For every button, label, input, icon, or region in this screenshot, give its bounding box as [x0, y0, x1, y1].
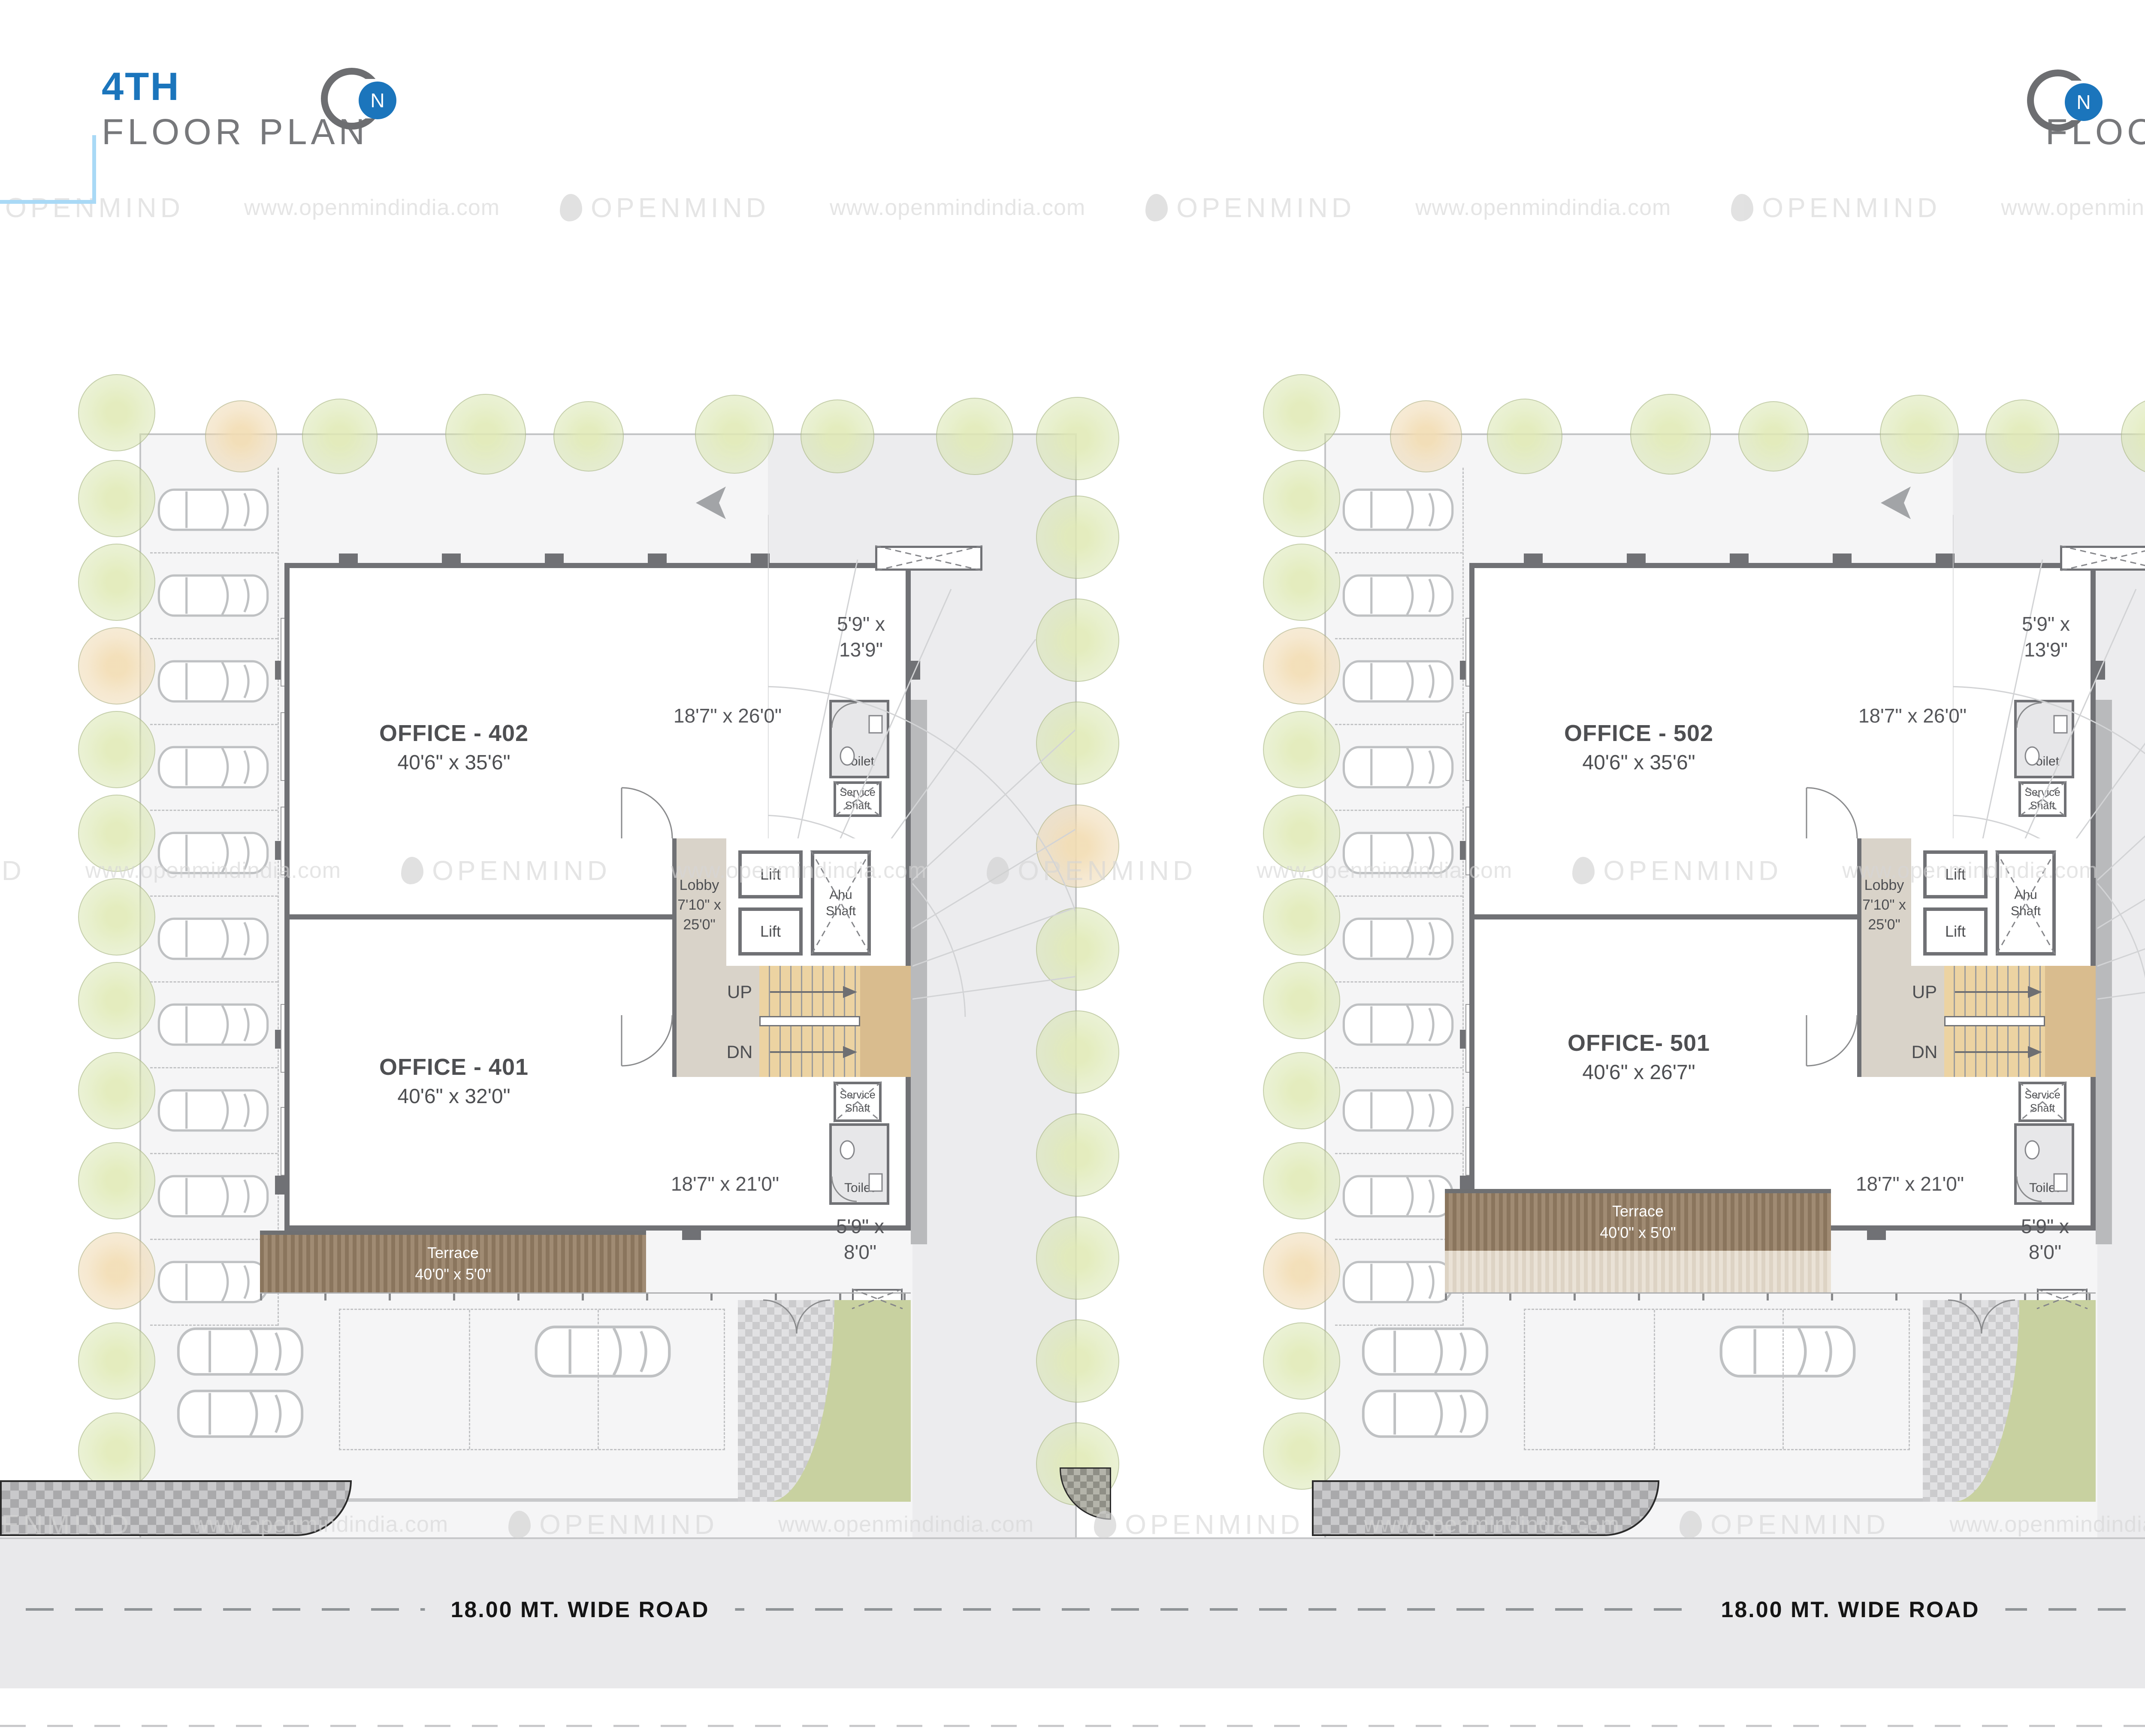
- floor-plan-5th: Lift Lift AhuShaft ServiceShaft ServiceS…: [1284, 386, 2145, 1537]
- car-icon: [1340, 656, 1456, 707]
- office-partition-wall: [1474, 914, 1857, 919]
- tree-icon: [78, 544, 155, 621]
- terrace: Terrace40'0" x 5'0": [260, 1231, 646, 1292]
- parking-stall: [1335, 1154, 1462, 1240]
- exterior-ledge: [911, 700, 927, 1244]
- tree-icon: [1263, 962, 1340, 1039]
- tree-icon: [78, 1412, 155, 1490]
- watermark-brand-text: OPENMIND: [1176, 192, 1355, 224]
- parking-stall: [1335, 1068, 1462, 1154]
- office-bottom-label: OFFICE - 40140'6" x 32'0": [304, 1054, 604, 1108]
- lift-label: Lift: [742, 854, 799, 895]
- watermark-url: www.openmindindia.com: [1415, 195, 1671, 221]
- car-icon: [1340, 484, 1456, 535]
- road-edge-dashes: [0, 1725, 2145, 1727]
- tree-icon: [302, 399, 378, 474]
- parking-stall: [150, 725, 278, 811]
- tree-icon: [1263, 627, 1340, 705]
- north-indicator-right: N: [2027, 70, 2109, 134]
- railing: [1445, 1292, 2096, 1300]
- parking-stall: [1335, 553, 1462, 639]
- parking-stall: [150, 553, 278, 639]
- road-label-right: 18.00 MT. WIDE ROAD: [1695, 1597, 2005, 1623]
- toilet-label: Toilet: [2017, 754, 2072, 769]
- car-icon: [163, 1324, 317, 1379]
- ahu-label: AhuShaft: [814, 854, 867, 952]
- parking-stall: [150, 811, 278, 897]
- parking-stall: [1335, 1240, 1462, 1326]
- exterior-ledge: [2096, 700, 2112, 1244]
- stairs-dn-label: DN: [1903, 1042, 1946, 1062]
- service-label: ServiceShaft: [836, 784, 879, 814]
- car-icon: [155, 913, 271, 965]
- lift-1: Lift: [1923, 850, 1988, 898]
- north-indicator-left: N: [321, 68, 402, 132]
- car-icon: [1340, 1256, 1456, 1308]
- parking-stall: [1335, 811, 1462, 897]
- ahu-label: AhuShaft: [1999, 854, 2052, 952]
- terrace: Terrace40'0" x 5'0": [1445, 1189, 1831, 1251]
- car-icon: [1348, 1324, 1502, 1379]
- office-bottom-label: OFFICE- 50140'6" x 26'7": [1489, 1030, 1789, 1084]
- service-shaft-bottom: ServiceShaft: [834, 1082, 882, 1122]
- lift-2: Lift: [738, 907, 803, 956]
- tree-icon: [1390, 400, 1462, 472]
- tree-icon: [205, 400, 277, 472]
- watermark-url: www.openmindindia.com: [2001, 195, 2145, 221]
- watermark-url: www.openmindindia.com: [830, 195, 1085, 221]
- tree-icon: [1036, 702, 1119, 785]
- stair-landing: [860, 966, 911, 1077]
- openmind-logo-icon: [560, 194, 582, 221]
- lobby-room: [672, 838, 726, 1077]
- terrace-below-ghost: [1445, 1251, 1831, 1292]
- car-icon: [1340, 1170, 1456, 1222]
- dim-top: 18'7" x 26'0": [1784, 704, 2041, 727]
- watermark-brand: OPENMIND: [0, 855, 25, 886]
- tree-icon: [78, 627, 155, 705]
- tree-icon: [1738, 401, 1809, 472]
- dim-top: 18'7" x 26'0": [599, 704, 856, 727]
- watermark-brand: OPENMIND: [560, 192, 770, 224]
- lift-label: Lift: [742, 911, 799, 952]
- tree-icon: [1263, 460, 1340, 537]
- tree-icon: [1036, 1113, 1119, 1197]
- tree-icon: [1487, 399, 1562, 474]
- tree-icon: [78, 711, 155, 788]
- tree-icon: [801, 399, 874, 473]
- tree-icon: [1036, 804, 1119, 888]
- tree-icon: [1036, 907, 1119, 991]
- tree-icon: [936, 398, 1013, 475]
- tree-icon: [1263, 1412, 1340, 1490]
- parking-stall-group: [339, 1309, 725, 1450]
- car-icon: [155, 570, 271, 621]
- stair-divider: [1944, 1016, 2045, 1026]
- tree-icon: [1263, 1232, 1340, 1310]
- lift-label: Lift: [1927, 911, 1984, 952]
- tree-icon: [1263, 544, 1340, 621]
- watermark-brand: OPENMIND: [1731, 192, 1941, 224]
- tree-icon: [1036, 599, 1119, 682]
- car-icon: [155, 1256, 271, 1308]
- car-icon: [1340, 913, 1456, 965]
- service-shaft-top: ServiceShaft: [834, 781, 882, 817]
- tree-icon: [445, 394, 526, 475]
- office-top-label: OFFICE - 40240'6" x 35'6": [304, 720, 604, 774]
- ahu-shaft: AhuShaft: [811, 850, 871, 956]
- parking-stall-column: [150, 468, 279, 1326]
- watermark-brand-text: OPENMIND: [0, 855, 25, 886]
- lift-1: Lift: [738, 850, 803, 898]
- parking-stall: [150, 983, 278, 1068]
- dim-bottom: 18'7" x 21'0": [596, 1172, 854, 1195]
- watermark-brand: OPENMIND: [1145, 192, 1355, 224]
- terrace-label: Terrace40'0" x 5'0": [260, 1235, 646, 1292]
- footpath-right: [1312, 1480, 1659, 1536]
- north-letter: N: [2076, 91, 2091, 114]
- watermark-url: www.openmindindia.com: [244, 195, 500, 221]
- parking-stall: [150, 1240, 278, 1326]
- tree-icon: [1263, 1142, 1340, 1219]
- watermark-row: OPENMINDwww.openmindindia.comOPENMINDwww…: [0, 188, 2145, 227]
- tree-icon: [1263, 1052, 1340, 1129]
- tree-icon: [695, 395, 774, 474]
- car-icon: [163, 1386, 317, 1442]
- tree-icon: [78, 1232, 155, 1310]
- footpath-left: [0, 1480, 352, 1536]
- service-shaft-bottom: ServiceShaft: [2018, 1082, 2066, 1122]
- openmind-logo-icon: [1145, 194, 1168, 221]
- lift-label: Lift: [1927, 854, 1984, 895]
- louver-window-top: [875, 546, 982, 571]
- tree-icon: [1036, 1319, 1119, 1403]
- parking-stall: [150, 1068, 278, 1154]
- tree-icon: [78, 1322, 155, 1400]
- tree-icon: [1263, 795, 1340, 872]
- tree-icon: [1036, 397, 1119, 480]
- stair-landing: [2045, 966, 2096, 1077]
- dim-corner-bottom: 5'9" x8'0": [1981, 1213, 2109, 1265]
- parking-stall: [150, 639, 278, 725]
- office-top-label: OFFICE - 50240'6" x 35'6": [1489, 720, 1789, 774]
- north-letter: N: [370, 89, 384, 112]
- car-icon: [155, 1170, 271, 1222]
- stair-divider: [759, 1016, 860, 1026]
- ahu-shaft: AhuShaft: [1996, 850, 2056, 956]
- tree-icon: [1263, 374, 1340, 451]
- car-icon: [155, 1085, 271, 1136]
- tree-icon: [1263, 878, 1340, 956]
- dim-corner-top: 5'9" x13'9": [797, 611, 925, 662]
- watermark-brand-text: OPENMIND: [1125, 1509, 1304, 1540]
- parking-stall: [1335, 639, 1462, 725]
- tree-icon: [1036, 496, 1119, 579]
- lift-2: Lift: [1923, 907, 1988, 956]
- dim-corner-bottom: 5'9" x8'0": [796, 1213, 924, 1265]
- tree-icon: [78, 374, 155, 451]
- accent-bracket-left-vertical: [92, 135, 96, 204]
- car-icon: [1340, 570, 1456, 621]
- service-label: ServiceShaft: [2021, 784, 2064, 814]
- car-icon: [1340, 1085, 1456, 1136]
- toilet-label: Toilet: [832, 754, 887, 769]
- dim-bottom: 18'7" x 21'0": [1781, 1172, 2039, 1195]
- terrace-label: Terrace40'0" x 5'0": [1445, 1193, 1831, 1251]
- tree-icon: [553, 401, 624, 472]
- tree-icon: [1036, 1216, 1119, 1300]
- watermark-brand-text: OPENMIND: [1762, 192, 1941, 224]
- railing: [260, 1292, 911, 1300]
- car-icon: [155, 741, 271, 793]
- tree-icon: [78, 878, 155, 956]
- tree-icon: [1263, 711, 1340, 788]
- brochure-page: 4TH FLOOR PLAN 5TH FLOOR PLAN N N OPENMI…: [0, 0, 2145, 1736]
- floor-plan-4th: Lift Lift AhuShaft ServiceShaft ServiceS…: [99, 386, 1128, 1537]
- north-icon: N: [359, 82, 396, 119]
- lobby-label: Lobby7'10" x25'0": [1853, 875, 1915, 935]
- car-icon: [155, 656, 271, 707]
- openmind-logo-icon: [1731, 194, 1753, 221]
- tree-icon: [78, 962, 155, 1039]
- car-icon: [155, 484, 271, 535]
- tree-icon: [1985, 399, 2059, 473]
- office-partition-wall: [290, 914, 672, 919]
- parking-stall-column: [1335, 468, 1464, 1326]
- north-icon: N: [2065, 83, 2103, 121]
- tree-icon: [78, 1142, 155, 1219]
- car-icon: [1340, 827, 1456, 879]
- lobby-room: [1857, 838, 1911, 1077]
- stairs-up-label: UP: [718, 982, 761, 1002]
- road-label-left: 18.00 MT. WIDE ROAD: [425, 1597, 735, 1623]
- louver-window-top: [2060, 546, 2145, 571]
- car-icon: [1340, 741, 1456, 793]
- dim-corner-top: 5'9" x13'9": [1982, 611, 2110, 662]
- car-icon: [155, 999, 271, 1050]
- tree-icon: [78, 1052, 155, 1129]
- stairs-dn-label: DN: [718, 1042, 761, 1062]
- service-label: ServiceShaft: [2021, 1084, 2064, 1119]
- lobby-label: Lobby7'10" x25'0": [668, 875, 731, 935]
- parking-stall: [150, 897, 278, 983]
- car-icon: [1348, 1386, 1502, 1442]
- tree-icon: [1630, 394, 1711, 475]
- parking-stall: [1335, 897, 1462, 983]
- parking-stall: [150, 468, 278, 553]
- car-icon: [1340, 999, 1456, 1050]
- tree-icon: [1880, 395, 1959, 474]
- parking-stall: [150, 1154, 278, 1240]
- service-label: ServiceShaft: [836, 1084, 879, 1119]
- parking-stall: [1335, 983, 1462, 1068]
- tree-icon: [1263, 1322, 1340, 1400]
- tree-icon: [78, 460, 155, 537]
- parking-stall: [1335, 725, 1462, 811]
- car-icon: [155, 827, 271, 879]
- tree-icon: [1036, 1010, 1119, 1094]
- accent-bracket-left-horizontal: [0, 200, 96, 204]
- stairs-up-label: UP: [1903, 982, 1946, 1002]
- parking-stall: [1335, 468, 1462, 553]
- watermark-brand-text: OPENMIND: [591, 192, 770, 224]
- service-shaft-top: ServiceShaft: [2018, 781, 2066, 817]
- tree-icon: [78, 795, 155, 872]
- parking-stall-group: [1524, 1309, 1910, 1450]
